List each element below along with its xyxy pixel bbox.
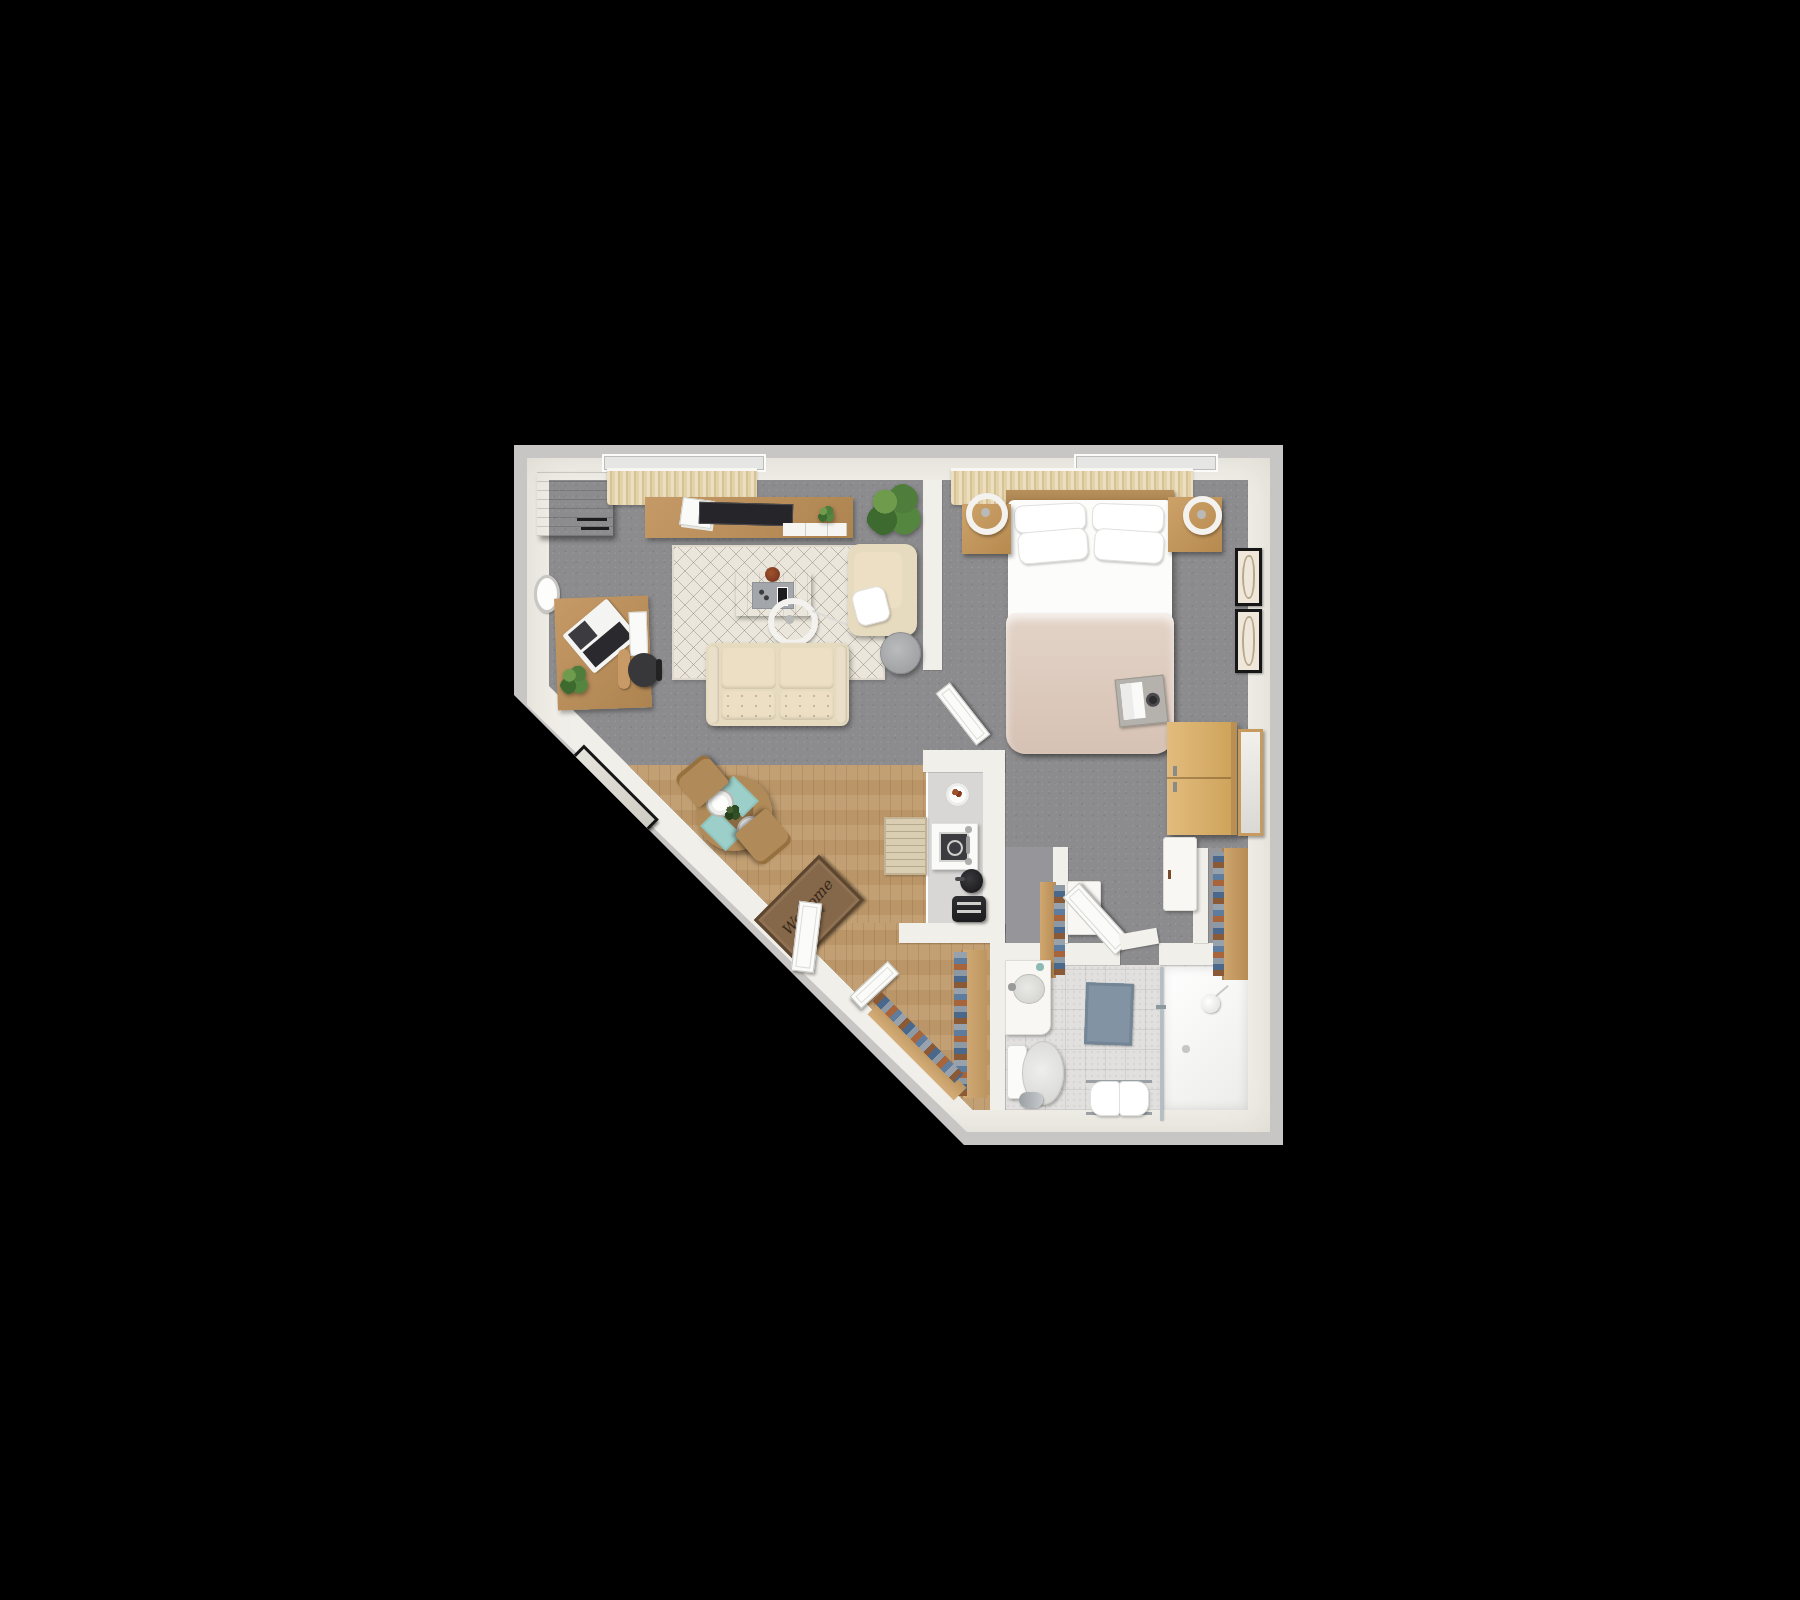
wardrobe-handle bbox=[1173, 782, 1177, 792]
shower-glass-handle bbox=[1156, 1005, 1166, 1009]
sofa-armrest-left bbox=[708, 645, 719, 724]
large-potted-plant bbox=[864, 482, 924, 538]
armchair bbox=[848, 544, 917, 636]
shower-mat bbox=[1084, 982, 1134, 1046]
closet-hanging-rod-diagonal bbox=[868, 1002, 967, 1101]
kitchen-serving-plate bbox=[945, 782, 970, 807]
cabinet-drawer-slot bbox=[577, 518, 607, 521]
office-chair-armrest bbox=[656, 659, 662, 681]
wardrobe-door-seam bbox=[1167, 777, 1231, 779]
cooktop-basin bbox=[939, 832, 969, 862]
open-book bbox=[1120, 682, 1146, 720]
shower-arm bbox=[1215, 985, 1229, 997]
sofa-seat-cushion bbox=[779, 691, 834, 720]
vanity-sink bbox=[1013, 974, 1045, 1004]
toilet-paper-stand bbox=[1019, 1092, 1043, 1108]
cabinet-drawer-slot bbox=[581, 527, 609, 530]
bed-pillow bbox=[1017, 527, 1090, 565]
wall-art-frame bbox=[1235, 548, 1262, 606]
living-room-door-open bbox=[936, 682, 991, 745]
faucet bbox=[966, 836, 970, 854]
shoe-shelf-right-unit bbox=[1222, 848, 1248, 980]
soap-dish bbox=[1036, 963, 1044, 971]
folded-towel bbox=[1119, 1081, 1149, 1116]
decor-bowl bbox=[765, 567, 780, 582]
leaning-mirror-bedroom bbox=[1238, 729, 1263, 836]
side-table bbox=[880, 632, 921, 674]
wardrobe-handle bbox=[1173, 766, 1177, 776]
white-wall-cabinet bbox=[1163, 837, 1197, 911]
bed-pillow bbox=[1093, 528, 1165, 565]
food-items bbox=[952, 788, 962, 798]
sofa-armrest-right bbox=[836, 645, 847, 724]
burner bbox=[947, 840, 963, 856]
tv-screen bbox=[699, 502, 794, 526]
wall-art-frame bbox=[1235, 609, 1262, 673]
breakfast-tray bbox=[1115, 675, 1169, 728]
ring-pendant-lamp-right bbox=[1183, 496, 1222, 535]
sofa-back-cushion bbox=[779, 648, 834, 689]
hanging-clothes-diagonal bbox=[872, 992, 963, 1083]
cabinet-handle bbox=[1168, 870, 1171, 879]
toaster-slot bbox=[957, 910, 981, 913]
leaning-floor-mirror bbox=[569, 745, 659, 835]
shower-drain bbox=[1182, 1045, 1190, 1053]
floor-plan: Welcome HOME bbox=[514, 445, 1283, 1145]
console-drawers bbox=[783, 523, 847, 536]
bathroom-threshold-wedge bbox=[1119, 928, 1159, 950]
toaster-slot bbox=[957, 902, 981, 905]
double-bed bbox=[1008, 500, 1172, 752]
office-chair bbox=[616, 643, 666, 697]
shower-glass-panel bbox=[1160, 967, 1163, 1121]
faucet-knob bbox=[965, 826, 972, 833]
tray-items bbox=[758, 588, 770, 602]
console-plant bbox=[817, 505, 835, 523]
folded-towel bbox=[1090, 1081, 1120, 1116]
table-centerpiece bbox=[724, 804, 741, 821]
bathroom-vanity bbox=[1005, 960, 1051, 1035]
sink-faucet bbox=[1008, 983, 1016, 991]
sofa-seat-cushion bbox=[721, 691, 776, 720]
sofa-back-cushion bbox=[721, 648, 776, 689]
screenshot-canvas: Welcome HOME bbox=[0, 0, 1800, 1600]
corner-storage-cabinet bbox=[537, 472, 613, 536]
sofa bbox=[706, 643, 849, 726]
furnishings-layer: Welcome HOME bbox=[514, 445, 1283, 1145]
shower-head bbox=[1201, 994, 1220, 1013]
arc-floor-lamp-shade bbox=[768, 598, 818, 646]
kettle-handle bbox=[955, 877, 965, 881]
towel-bench bbox=[1086, 1078, 1152, 1120]
tv-console bbox=[645, 497, 853, 538]
hall-runner-rug bbox=[884, 817, 927, 875]
coffee-mug bbox=[1145, 692, 1160, 707]
desk-plant bbox=[558, 664, 589, 697]
sink-cooktop-unit bbox=[931, 823, 978, 870]
ring-pendant-lamp-left bbox=[966, 493, 1008, 535]
kettle bbox=[960, 869, 983, 893]
faucet-knob bbox=[965, 858, 972, 865]
toaster bbox=[952, 896, 986, 922]
shoes-right-niche bbox=[1213, 852, 1224, 976]
bedroom-wardrobe bbox=[1167, 722, 1237, 835]
